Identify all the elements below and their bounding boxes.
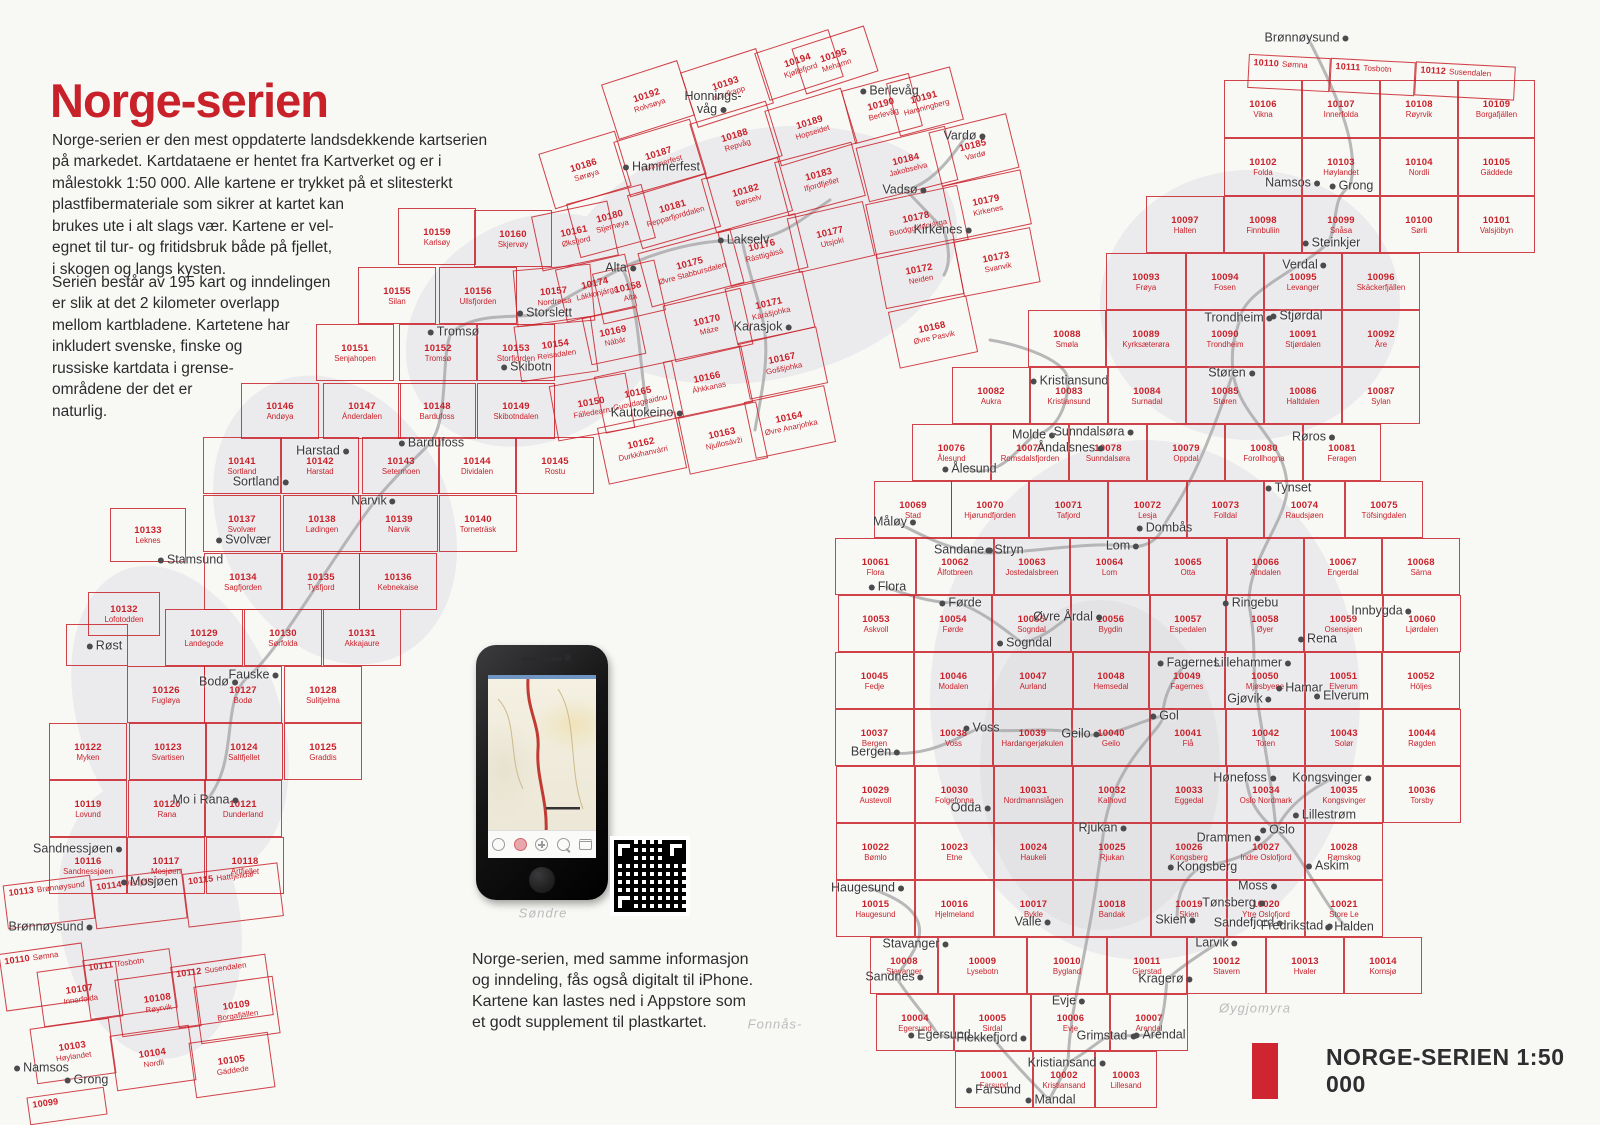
- phone-screen: [488, 675, 596, 858]
- iphone-mockup: [476, 645, 608, 900]
- position-icon: [514, 838, 527, 851]
- phone-route: [488, 679, 596, 835]
- search-icon: [557, 838, 570, 851]
- red-mark: [1252, 1043, 1278, 1099]
- list-icon: [579, 839, 592, 850]
- intro-paragraph-2: Serien består av 195 kart og inndelingen…: [52, 272, 392, 423]
- qr-code: [614, 840, 686, 912]
- pin-icon: [492, 838, 505, 851]
- series-logo: NORGE-SERIEN 1:50 000: [1252, 1043, 1600, 1099]
- phone-toolbar: [488, 830, 596, 858]
- add-icon: [535, 838, 548, 851]
- iphone-app-text: Norge-serien, med samme informasjon og i…: [472, 949, 772, 1033]
- series-label: NORGE-SERIEN 1:50 000: [1326, 1044, 1600, 1098]
- phone-speaker: [522, 657, 562, 661]
- page-title: Norge-serien: [50, 73, 328, 128]
- phone-home-button: [529, 867, 555, 893]
- intro-paragraph-1: Norge-serien er den mest oppdaterte land…: [52, 130, 672, 281]
- phone-camera: [564, 654, 571, 661]
